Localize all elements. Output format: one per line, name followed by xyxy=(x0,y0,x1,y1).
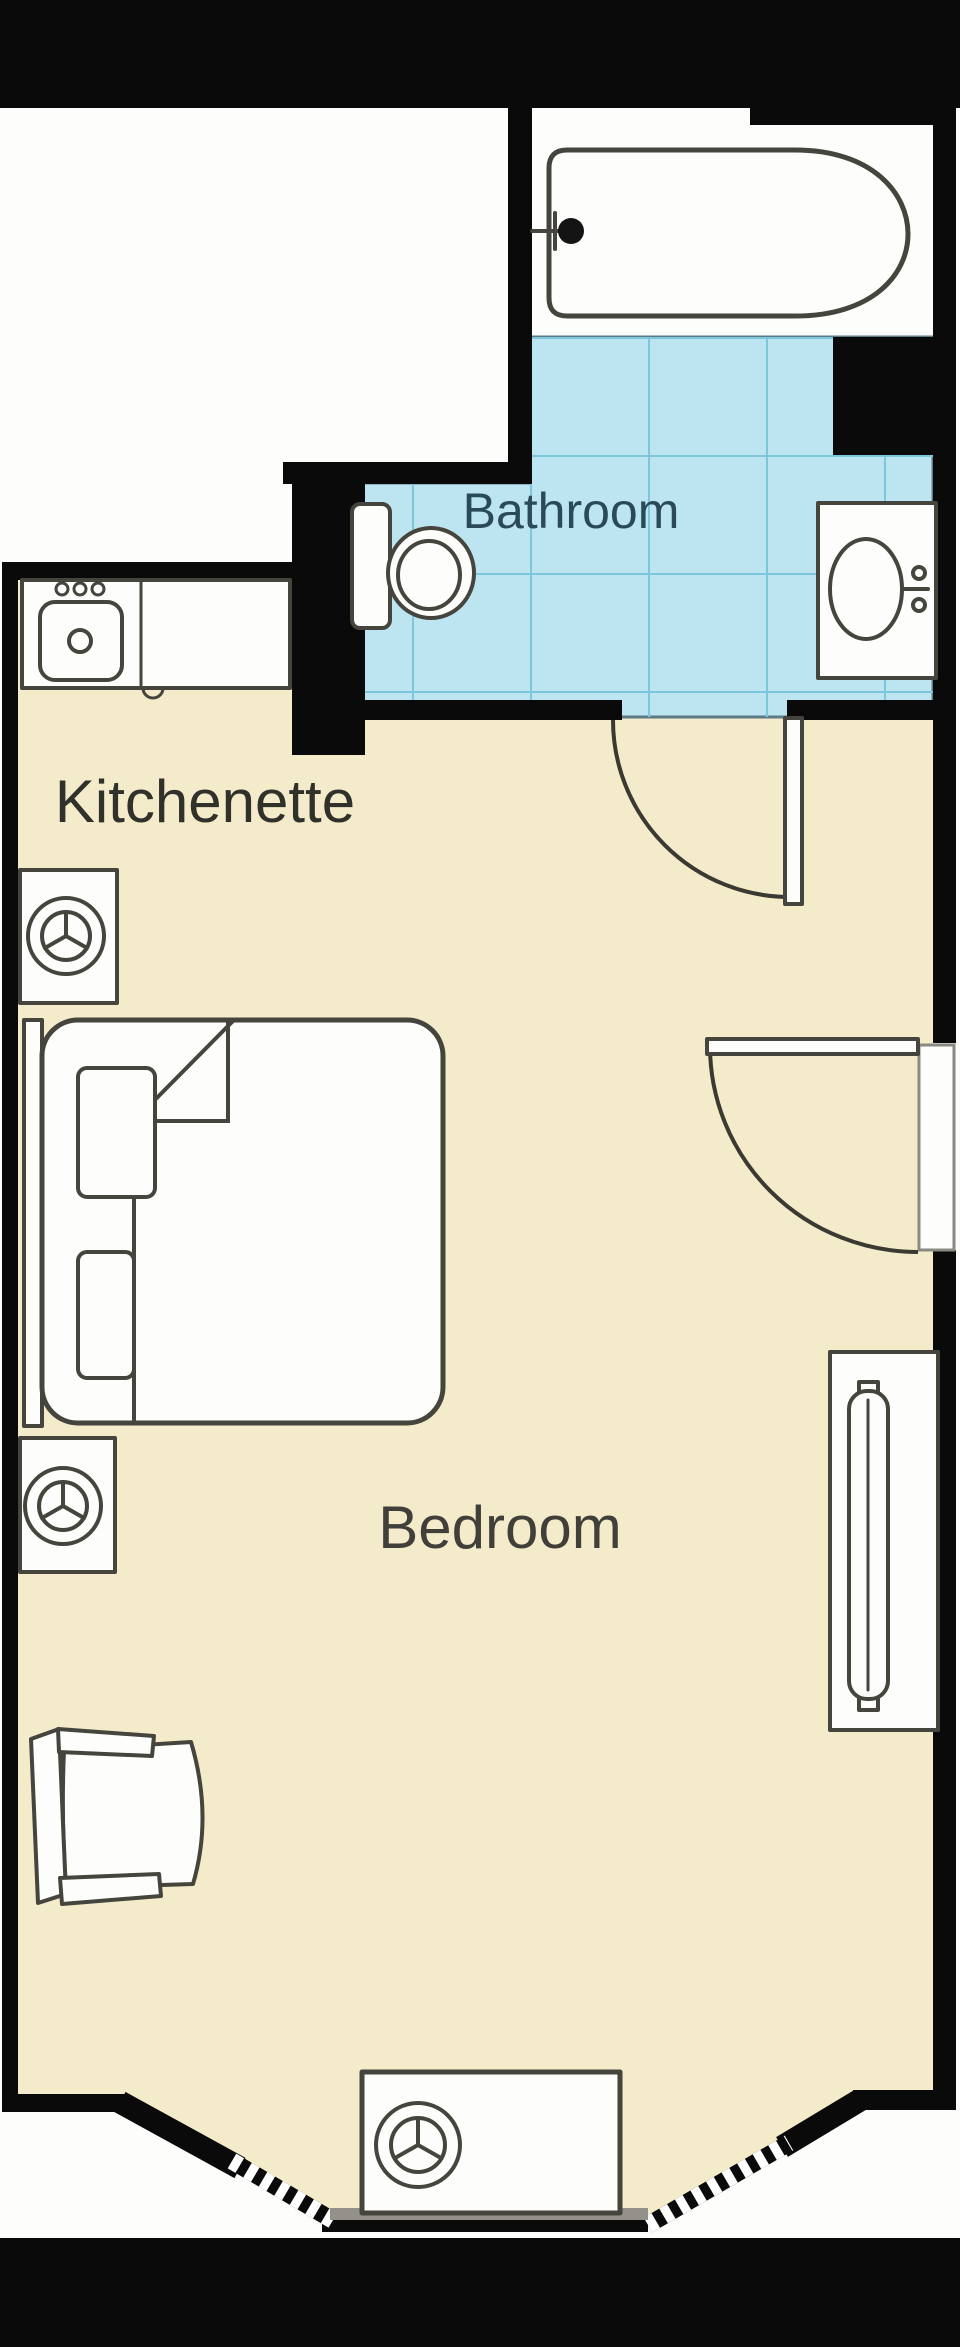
entry-door-leaf xyxy=(707,1039,918,1054)
wall-bathroom-south-left xyxy=(350,700,622,720)
pillow xyxy=(78,1252,134,1378)
bed-headboard xyxy=(24,1020,42,1426)
wall-kitchenette-north xyxy=(2,562,292,580)
bathroom-sink xyxy=(818,503,936,678)
wall-bay-stub-left xyxy=(2,2094,128,2112)
fan-symbol-icon xyxy=(28,898,104,974)
fan-symbol-icon xyxy=(376,2103,460,2187)
wall-bay-stub-right xyxy=(853,2090,956,2110)
wall-tubroom-west xyxy=(508,105,532,483)
radiator xyxy=(830,1352,938,1730)
armchair-armrest-top xyxy=(58,1729,154,1756)
kitchen-counter xyxy=(22,580,290,698)
wall-bathroom-chase xyxy=(833,337,933,455)
bedroom-label: Bedroom xyxy=(378,1494,621,1561)
bathtub xyxy=(532,150,908,316)
wall-bathroom-south-right xyxy=(787,700,933,720)
utility-box-midwall xyxy=(20,1438,115,1572)
bathroom-door-leaf xyxy=(785,718,802,904)
bathroom-label: Bathroom xyxy=(463,483,680,539)
letterbox-bottom xyxy=(0,2238,960,2347)
floor-plan-page: Bathroom Kitchenette Bedroom xyxy=(0,0,960,2347)
utility-box-bay xyxy=(362,2072,620,2213)
entry-door-opening xyxy=(919,1045,954,1250)
floor-plan-drawing: Bathroom Kitchenette Bedroom xyxy=(0,0,960,2347)
armchair xyxy=(31,1729,203,1904)
wall-tubroom-north xyxy=(750,105,956,125)
pillow xyxy=(78,1068,155,1197)
letterbox-top xyxy=(0,0,960,108)
armchair-seat xyxy=(63,1742,203,1888)
wall-west xyxy=(2,562,18,2105)
fan-symbol-icon xyxy=(25,1468,101,1544)
bed xyxy=(24,1020,443,1426)
kitchenette-label: Kitchenette xyxy=(55,768,355,835)
toilet-bowl-inner xyxy=(398,541,460,609)
kitchen-sink-drain xyxy=(69,630,91,652)
sink-basin xyxy=(830,539,902,639)
utility-box-kitchen xyxy=(20,870,117,1003)
toilet-tank xyxy=(352,504,390,628)
